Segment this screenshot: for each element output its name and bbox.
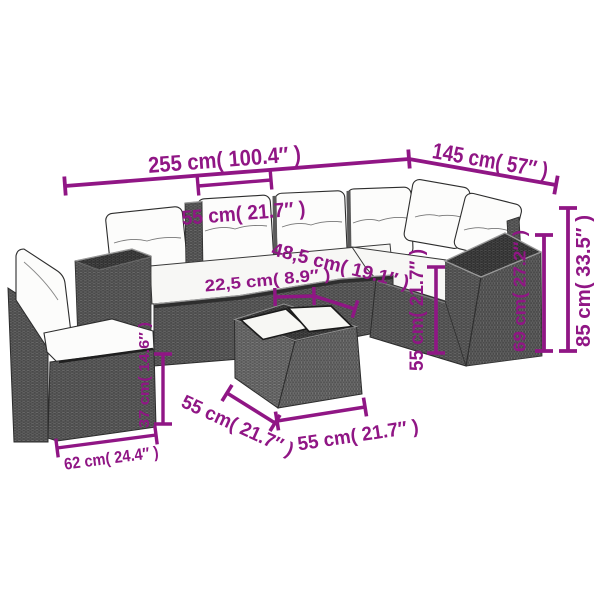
svg-text:85 cm( 33.5″ ): 85 cm( 33.5″ ) bbox=[572, 215, 595, 347]
svg-text:55 cm( 21.7″ ): 55 cm( 21.7″ ) bbox=[407, 249, 428, 371]
svg-text:37 cm( 14.6″ ): 37 cm( 14.6″ ) bbox=[137, 322, 153, 428]
svg-text:69 cm( 27.2″ ): 69 cm( 27.2″ ) bbox=[510, 230, 530, 352]
